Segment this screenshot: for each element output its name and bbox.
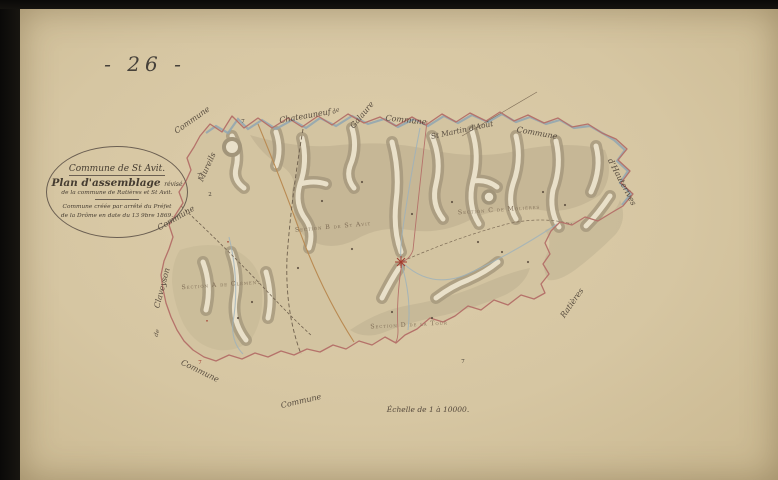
plan-subtitle-main: Plan d'assemblage [51,177,160,189]
plate-number: - 26 - [85,52,205,76]
parcel-number-mark: • [226,240,229,246]
cartouche-line3: de la commune de Ratières et St Avit. [61,190,172,196]
scale-note: Échelle de 1 à 10000. [368,405,488,414]
parcel-number-mark: 2 [208,192,212,198]
plan-subtitle: Plan d'assemblage révisé [51,178,182,190]
parcel-number-mark: 7 [198,360,202,366]
commune-title: Commune de St Avit. [69,164,165,176]
plan-subtitle-note: révisé [164,181,182,188]
parcel-number-mark: • [205,319,208,325]
parcel-number-mark: 7 [241,119,245,125]
parcel-number-mark: 7 [461,359,465,365]
cartouche-line4: Commune créée par arrêté du Préfet [63,203,172,211]
cartouche-divider [95,199,139,200]
scanned-cadastral-map: - 26 - Commune de St Avit. Plan d'assemb… [0,0,778,480]
parcel-number-mark: 7 [197,173,201,179]
cartouche-line5: de la Drôme en date du 13 9bre 1869. [61,212,173,220]
